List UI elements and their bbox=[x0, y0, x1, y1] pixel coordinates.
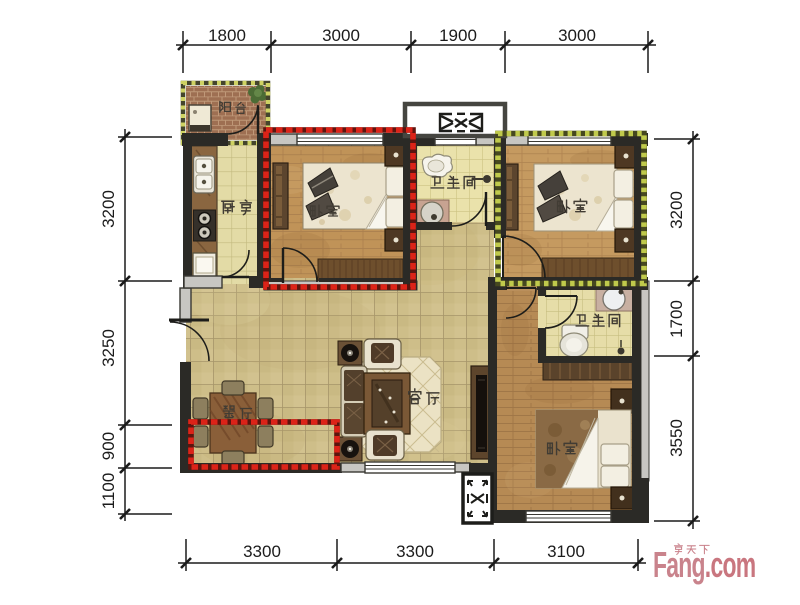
svg-text:3100: 3100 bbox=[547, 542, 585, 561]
svg-text:1700: 1700 bbox=[667, 300, 686, 338]
svg-text:3300: 3300 bbox=[396, 542, 434, 561]
svg-text:1900: 1900 bbox=[439, 26, 477, 45]
svg-text:1800: 1800 bbox=[208, 26, 246, 45]
svg-text:3250: 3250 bbox=[99, 329, 118, 367]
svg-text:3200: 3200 bbox=[667, 191, 686, 229]
svg-text:3000: 3000 bbox=[322, 26, 360, 45]
svg-text:900: 900 bbox=[99, 432, 118, 460]
svg-text:1100: 1100 bbox=[99, 473, 118, 510]
svg-text:3550: 3550 bbox=[667, 419, 686, 457]
svg-text:3200: 3200 bbox=[99, 190, 118, 228]
svg-text:3000: 3000 bbox=[558, 26, 596, 45]
svg-text:3300: 3300 bbox=[243, 542, 281, 561]
